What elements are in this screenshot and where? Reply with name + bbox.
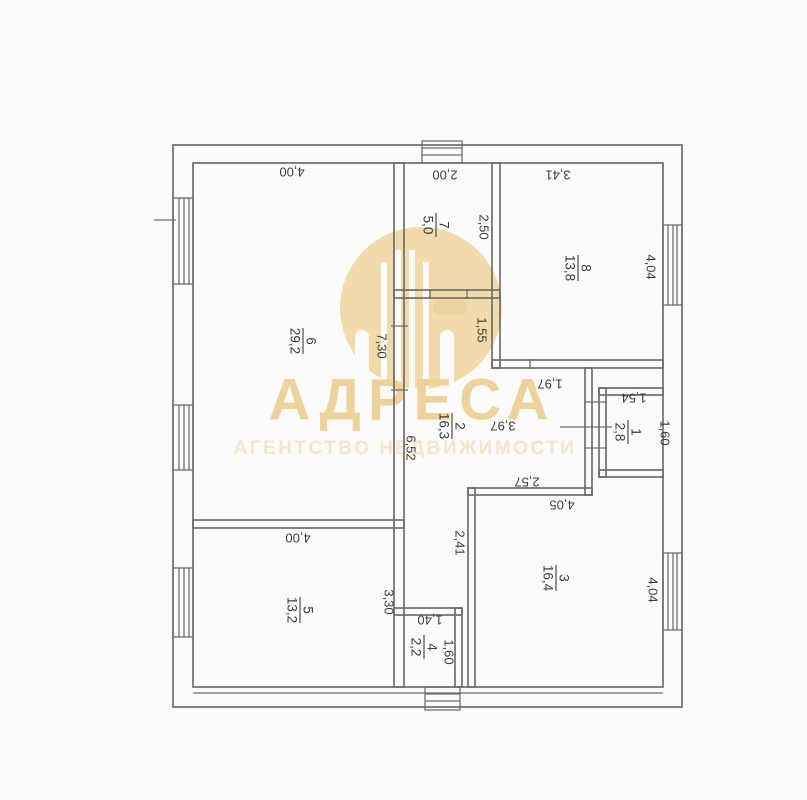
- dim-room8-top: 3,41: [545, 168, 570, 183]
- room-6-label: 6 29,2: [287, 328, 318, 354]
- wall-room1-bottom: [599, 470, 663, 477]
- dim-room5-top: 4,00: [285, 531, 310, 546]
- dim-room3-left: 2,41: [453, 530, 468, 555]
- dim-seg-197: 1,97: [537, 377, 562, 392]
- room-4-label: 4 2,2: [408, 635, 439, 659]
- dim-room4-right: 1,60: [442, 639, 457, 664]
- room-1-label: 1 2,8: [612, 420, 643, 444]
- window-left-2: [173, 405, 193, 470]
- room-1-number: 1: [628, 428, 643, 436]
- logo-accent: [433, 300, 467, 314]
- dim-room6-right: 7,30: [375, 333, 390, 358]
- room-5-number: 5: [300, 606, 315, 614]
- dim-room7-top: 2,00: [432, 168, 457, 183]
- dim-room7-right: 2,50: [477, 214, 492, 239]
- window-right-2: [663, 553, 682, 630]
- room-5-label: 5 13,2: [284, 597, 315, 623]
- dim-room2-width: 3,97: [490, 419, 515, 434]
- room-8-label: 8 13,8: [562, 255, 593, 281]
- dim-room5-right: 3,30: [382, 589, 397, 614]
- room-6-area: 29,2: [287, 328, 302, 354]
- wall-room5-top: [193, 520, 404, 528]
- dim-seg-155: 1,55: [475, 317, 490, 342]
- dim-room1-top: 1,54: [621, 391, 646, 406]
- room-6-number: 6: [303, 337, 318, 345]
- dim-seg-257: 2,57: [514, 475, 539, 490]
- room-4-number: 4: [424, 643, 439, 651]
- room-4-area: 2,2: [408, 638, 423, 657]
- watermark: АДРЕСА АГЕНТСТВО НЕДВИЖИМОСТИ: [234, 227, 577, 459]
- room-2-number: 2: [452, 422, 467, 430]
- room-8-area: 13,8: [562, 255, 577, 281]
- room-1-area: 2,8: [612, 423, 627, 442]
- window-left-1: [173, 198, 193, 284]
- window-right-1: [663, 225, 682, 305]
- wall-room3-left: [468, 488, 475, 687]
- window-left-3: [173, 568, 193, 637]
- room-7-area: 5,0: [420, 216, 435, 235]
- dim-room6-top: 4,00: [279, 165, 304, 180]
- dim-room2-left: 6,52: [404, 435, 419, 460]
- dim-room3-right: 4,04: [646, 577, 661, 602]
- dim-room3-top: 4,05: [549, 498, 574, 513]
- room-3-label: 3 16,4: [540, 565, 571, 592]
- dim-room4-top: 1,40: [417, 613, 442, 628]
- room-3-area: 16,4: [540, 565, 555, 592]
- wall-room2-right: [585, 368, 592, 495]
- dim-room8-right: 4,04: [644, 254, 659, 279]
- dim-room1-right: 1,60: [658, 420, 673, 445]
- room-2-area: 16,3: [436, 413, 451, 439]
- room-8-number: 8: [578, 264, 593, 272]
- room-7-number: 7: [436, 221, 451, 229]
- floor-plan-page: АДРЕСА АГЕНТСТВО НЕДВИЖИМОСТИ: [0, 0, 807, 800]
- room-5-area: 13,2: [284, 597, 299, 623]
- room-3-number: 3: [556, 574, 571, 582]
- floor-plan-drawing: АДРЕСА АГЕНТСТВО НЕДВИЖИМОСТИ: [0, 0, 807, 800]
